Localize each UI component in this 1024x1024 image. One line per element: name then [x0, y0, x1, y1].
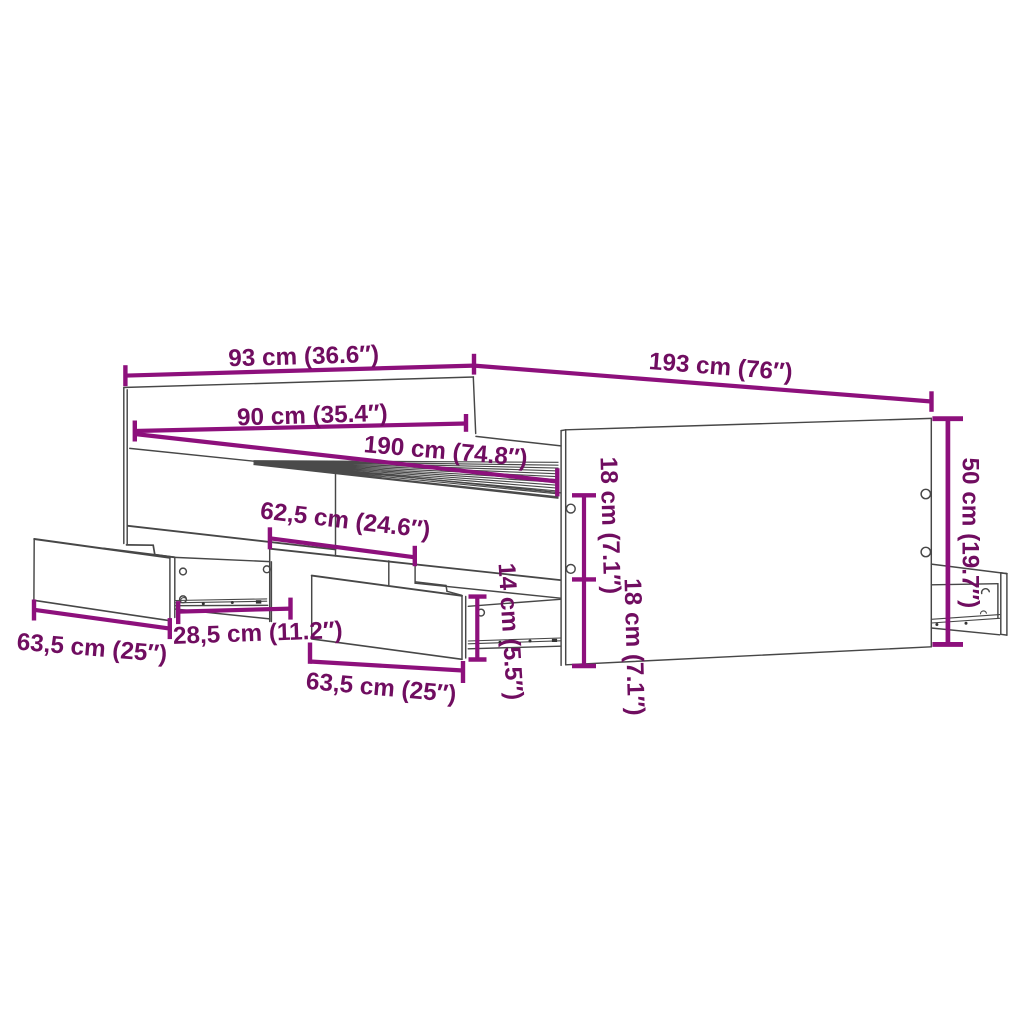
svg-text:93 cm (36.6″): 93 cm (36.6″) — [228, 341, 379, 372]
svg-text:50 cm (19.7″): 50 cm (19.7″) — [957, 458, 984, 609]
svg-text:18 cm (7.1″): 18 cm (7.1″) — [595, 456, 626, 594]
svg-text:90 cm (35.4″): 90 cm (35.4″) — [237, 400, 389, 431]
svg-text:18 cm (7.1″): 18 cm (7.1″) — [619, 578, 650, 716]
